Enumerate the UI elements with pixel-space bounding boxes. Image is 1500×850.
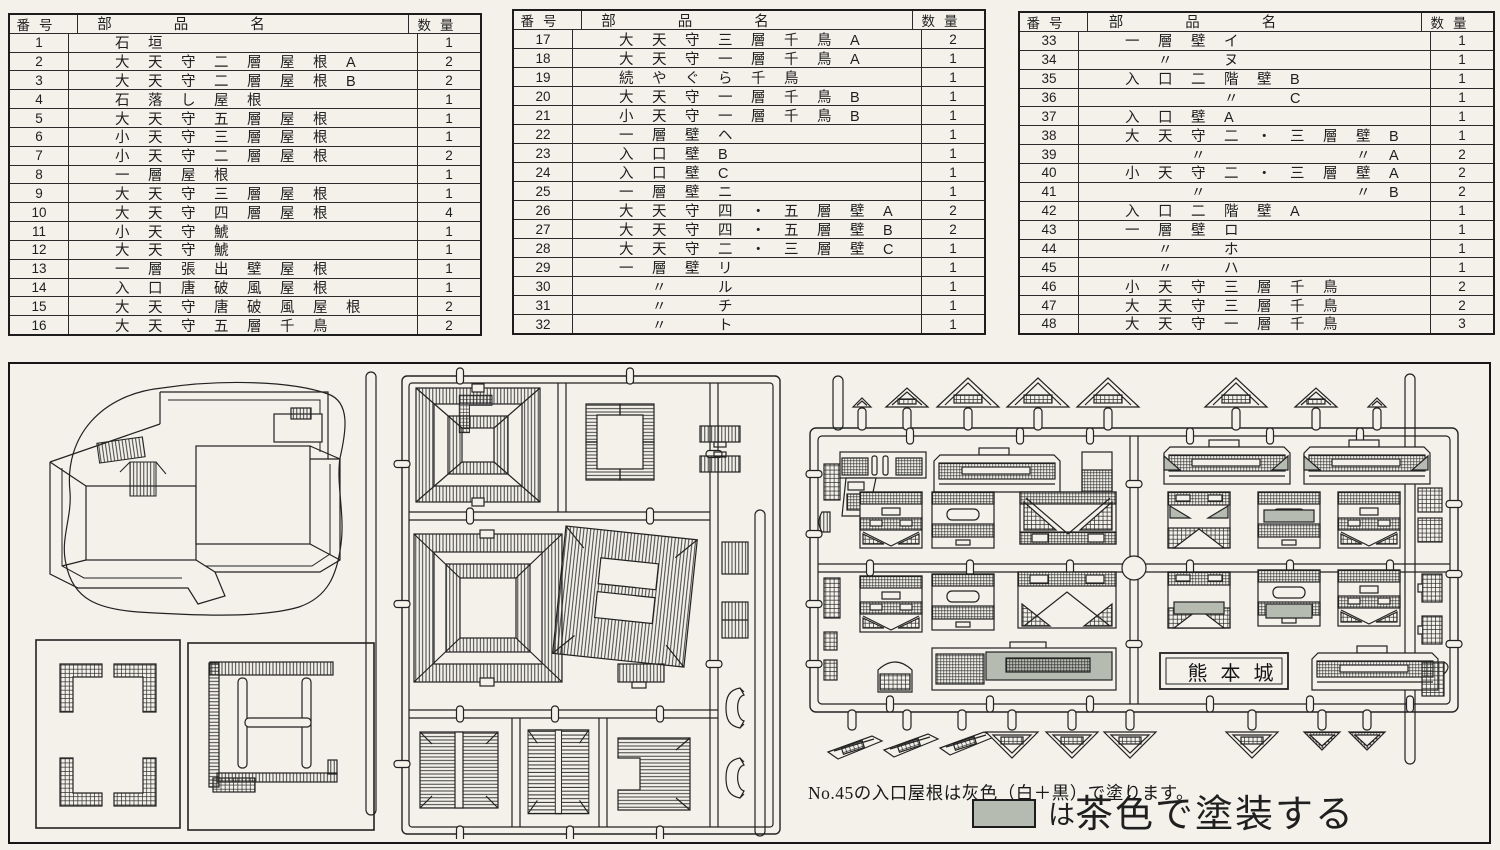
cell-name: 〃 ヌ — [1079, 51, 1430, 69]
table-row: 1石垣1 — [10, 33, 480, 52]
cell-no: 36 — [1020, 89, 1079, 107]
cell-no: 7 — [10, 147, 69, 165]
wall-sprue-runner — [806, 374, 1462, 764]
header-name: 部品名 — [78, 15, 408, 33]
cell-name: 〃 ホ — [1079, 240, 1430, 258]
cell-name: 一層壁イ — [1079, 32, 1430, 50]
cell-no: 23 — [514, 144, 573, 162]
table-row: 25一層壁ニ1 — [514, 181, 984, 200]
table-row: 23入口壁B1 — [514, 143, 984, 162]
cell-no: 34 — [1020, 51, 1079, 69]
cell-no: 32 — [514, 315, 573, 333]
cell-no: 5 — [10, 109, 69, 127]
cell-no: 47 — [1020, 296, 1079, 314]
wall-parts-top-right — [1164, 440, 1442, 548]
gable-wall-part — [932, 574, 994, 630]
cell-qty: 1 — [1430, 51, 1493, 69]
table-row: 13一層張出壁屋根1 — [10, 259, 480, 278]
cell-name: 大天守三層千鳥 — [1079, 296, 1430, 314]
table-row: 38大天守二・三層壁B1 — [1020, 125, 1493, 144]
table-row: 17大天守三層千鳥A2 — [514, 29, 984, 48]
table-row: 5大天守五層屋根1 — [10, 108, 480, 127]
cell-no: 37 — [1020, 107, 1079, 125]
brown-paint-swatch — [972, 799, 1036, 828]
cell-qty: 1 — [1430, 89, 1493, 107]
table-row: 3大天守二層屋根B2 — [10, 70, 480, 89]
clip-part — [1418, 574, 1442, 602]
long-roof-wall-part — [1304, 440, 1430, 484]
main-keep-compound-roof-part — [414, 526, 697, 688]
cell-name: 入口二階壁B — [1079, 70, 1430, 88]
wall-sprue-box — [188, 643, 374, 830]
cell-name: 小天守一層千鳥B — [573, 106, 921, 124]
cell-name: 小天守二・三層壁A — [1079, 164, 1430, 182]
cell-qty: 2 — [921, 220, 984, 238]
gable-wall-part — [1258, 570, 1320, 626]
cell-qty: 1 — [921, 296, 984, 314]
cell-no: 16 — [10, 316, 69, 334]
gable-wall-part — [1338, 492, 1400, 548]
cell-no: 1 — [10, 34, 69, 52]
cell-no: 41 — [1020, 183, 1079, 201]
table-row: 29一層壁リ1 — [514, 257, 984, 276]
cell-qty: 1 — [921, 239, 984, 257]
cell-qty: 2 — [1430, 164, 1493, 182]
cell-qty: 1 — [417, 128, 480, 146]
header-qty: 数量 — [1421, 13, 1493, 31]
cell-no: 8 — [10, 166, 69, 184]
header-qty: 数量 — [408, 15, 480, 33]
header-qty: 数量 — [912, 11, 984, 29]
cell-qty: 1 — [1430, 107, 1493, 125]
cell-qty: 1 — [921, 68, 984, 86]
cell-qty: 1 — [417, 109, 480, 127]
table-row: 42入口二階壁A1 — [1020, 201, 1493, 220]
cell-qty: 1 — [921, 277, 984, 295]
cell-name: 大天守三層千鳥A — [573, 30, 921, 48]
cell-qty: 1 — [921, 106, 984, 124]
cell-qty: 1 — [1430, 126, 1493, 144]
wide-gable-wall-part — [1018, 572, 1116, 628]
cell-no: 30 — [514, 277, 573, 295]
cell-qty: 2 — [417, 147, 480, 165]
table-row: 34 〃 ヌ1 — [1020, 50, 1493, 69]
table-row: 10大天守四層屋根4 — [10, 202, 480, 221]
cell-no: 22 — [514, 125, 573, 143]
cell-qty: 2 — [921, 201, 984, 219]
wide-gable-wall-part — [1020, 492, 1116, 544]
table-row: 11小天守鯱1 — [10, 221, 480, 240]
cell-qty: 1 — [921, 315, 984, 333]
small-ridge-parts — [700, 426, 740, 472]
cell-name: 〃 ト — [573, 315, 921, 333]
cell-no: 25 — [514, 182, 573, 200]
cell-no: 26 — [514, 201, 573, 219]
parts-table-1: 番号 部品名 数量 1石垣12大天守二層屋根A23大天守二層屋根B24石落し屋根… — [8, 13, 482, 336]
table-row: 12大天守鯱1 — [10, 240, 480, 259]
cell-no: 48 — [1020, 315, 1079, 333]
table-row: 14入口唐破風屋根1 — [10, 278, 480, 297]
cell-no: 42 — [1020, 202, 1079, 220]
header-no: 番号 — [10, 15, 78, 33]
table-row: 8一層屋根1 — [10, 165, 480, 184]
corner-wall-part — [60, 664, 102, 712]
cell-no: 19 — [514, 68, 573, 86]
legend-text: 茶色で塗装する — [1075, 796, 1355, 834]
gable-wall-part — [1168, 572, 1230, 628]
cell-name: 〃 C — [1079, 89, 1430, 107]
cell-name: 一層張出壁屋根 — [69, 260, 417, 278]
painted-long-roof-part — [932, 642, 1116, 690]
cell-name: 大天守一層千鳥 — [1079, 315, 1430, 333]
cell-qty: 4 — [417, 203, 480, 221]
cell-name: 大天守三層屋根 — [69, 184, 417, 202]
cell-qty: 2 — [417, 53, 480, 71]
header-no: 番号 — [514, 11, 582, 29]
cell-name: 石落し屋根 — [69, 90, 417, 108]
table-row: 40小天守二・三層壁A2 — [1020, 163, 1493, 182]
cell-no: 45 — [1020, 258, 1079, 276]
cell-qty: 1 — [417, 241, 480, 259]
table-row: 28大天守二・三層壁C1 — [514, 238, 984, 257]
cell-name: 大天守一層千鳥B — [573, 87, 921, 105]
cell-qty: 2 — [1430, 277, 1493, 295]
cell-qty: 1 — [1430, 221, 1493, 239]
wall-parts-top-left — [819, 448, 1116, 548]
cell-qty: 2 — [417, 316, 480, 334]
arch-wall-part — [878, 662, 912, 692]
cell-no: 9 — [10, 184, 69, 202]
cell-no: 29 — [514, 258, 573, 276]
cell-name: 一層壁ニ — [573, 182, 921, 200]
table-header: 番号 部品名 数量 — [514, 11, 984, 29]
cell-name: 小天守三層千鳥 — [1079, 277, 1430, 295]
cell-name: 大天守唐破風屋根 — [69, 297, 417, 315]
table-row: 6小天守三層屋根1 — [10, 127, 480, 146]
cell-name: 大天守二・三層壁C — [573, 239, 921, 257]
table-row: 4石落し屋根1 — [10, 89, 480, 108]
clip-part — [726, 688, 744, 728]
cell-qty: 2 — [1430, 145, 1493, 163]
cell-no: 44 — [1020, 240, 1079, 258]
cell-no: 6 — [10, 128, 69, 146]
table-row: 2大天守二層屋根A2 — [10, 52, 480, 71]
cell-qty: 1 — [1430, 258, 1493, 276]
cell-name: 続やぐら千鳥 — [573, 68, 921, 86]
small-side-parts — [722, 542, 748, 798]
cell-qty: 1 — [921, 125, 984, 143]
table-row: 9大天守三層屋根1 — [10, 183, 480, 202]
sprue-diagram — [10, 364, 1488, 839]
table-row: 22一層壁ヘ1 — [514, 124, 984, 143]
cell-no: 24 — [514, 163, 573, 181]
cell-name: 〃 ル — [573, 277, 921, 295]
instruction-sheet: 番号 部品名 数量 1石垣12大天守二層屋根A23大天守二層屋根B24石落し屋根… — [0, 0, 1500, 850]
cell-qty: 1 — [417, 222, 480, 240]
cell-no: 33 — [1020, 32, 1079, 50]
cell-no: 21 — [514, 106, 573, 124]
cell-no: 14 — [10, 279, 69, 297]
cell-qty: 1 — [921, 182, 984, 200]
long-wall-part — [1312, 646, 1438, 690]
cell-name: 一層壁ロ — [1079, 221, 1430, 239]
small-roof-parts — [420, 730, 690, 814]
cell-name: 石垣 — [69, 34, 417, 52]
cell-name: 〃 チ — [573, 296, 921, 314]
cell-name: 一層壁ヘ — [573, 125, 921, 143]
cell-qty: 1 — [921, 49, 984, 67]
cell-name: 小天守三層屋根 — [69, 128, 417, 146]
table-row: 36 〃 C1 — [1020, 88, 1493, 107]
cell-name: 大天守鯱 — [69, 241, 417, 259]
long-roof-wall-part — [1164, 440, 1290, 484]
table-row: 27大天守四・五層壁B2 — [514, 219, 984, 238]
gable-wall-part — [932, 492, 994, 548]
cell-name: 〃 〃A — [1079, 145, 1430, 163]
cell-no: 27 — [514, 220, 573, 238]
cell-name: 大天守一層千鳥A — [573, 49, 921, 67]
gable-wall-part — [860, 576, 922, 632]
cell-no: 38 — [1020, 126, 1079, 144]
table-row: 16大天守五層千鳥2 — [10, 315, 480, 334]
cell-qty: 1 — [417, 90, 480, 108]
cell-name: 大天守五層千鳥 — [69, 316, 417, 334]
cell-name: 大天守二層屋根B — [69, 71, 417, 89]
cell-no: 28 — [514, 239, 573, 257]
parts-table-2: 番号 部品名 数量 17大天守三層千鳥A218大天守一層千鳥A119続やぐら千鳥… — [512, 9, 986, 335]
cell-qty: 1 — [1430, 202, 1493, 220]
table-header: 番号 部品名 数量 — [1020, 13, 1493, 31]
cell-no: 40 — [1020, 164, 1079, 182]
gable-triangle-parts — [853, 378, 1386, 407]
down-gable-parts — [986, 732, 1385, 758]
cell-name: 入口壁C — [573, 163, 921, 181]
clip-part — [1418, 616, 1442, 644]
cell-name: 大天守四層屋根 — [69, 203, 417, 221]
cell-qty: 2 — [1430, 296, 1493, 314]
cell-no: 17 — [514, 30, 573, 48]
table-row: 7小天守二層屋根2 — [10, 146, 480, 165]
cell-qty: 1 — [921, 87, 984, 105]
cell-no: 4 — [10, 90, 69, 108]
cell-name: 入口唐破風屋根 — [69, 279, 417, 297]
cell-qty: 1 — [417, 166, 480, 184]
cell-name: 大天守四・五層壁A — [573, 201, 921, 219]
table-row: 21小天守一層千鳥B1 — [514, 105, 984, 124]
table-row: 24入口壁C1 — [514, 162, 984, 181]
legend-particle: は — [1048, 793, 1075, 832]
cell-qty: 1 — [1430, 70, 1493, 88]
header-name: 部品名 — [1088, 13, 1421, 31]
cell-name: 入口壁B — [573, 144, 921, 162]
header-name: 部品名 — [582, 11, 912, 29]
cell-name: 大天守二・三層壁B — [1079, 126, 1430, 144]
table-row: 30 〃 ル1 — [514, 276, 984, 295]
cell-name: 大天守五層屋根 — [69, 109, 417, 127]
table-row: 39 〃 〃A2 — [1020, 144, 1493, 163]
cell-qty: 2 — [921, 30, 984, 48]
table-row: 45 〃 ハ1 — [1020, 257, 1493, 276]
cell-no: 13 — [10, 260, 69, 278]
cell-qty: 1 — [921, 144, 984, 162]
cell-qty: 1 — [921, 258, 984, 276]
stone-base-drawing — [50, 382, 345, 615]
cell-no: 35 — [1020, 70, 1079, 88]
cell-name: 一層屋根 — [69, 166, 417, 184]
cell-qty: 2 — [417, 71, 480, 89]
cell-name: 一層壁リ — [573, 258, 921, 276]
cell-no: 43 — [1020, 221, 1079, 239]
table-row: 35入口二階壁B1 — [1020, 69, 1493, 88]
cell-no: 18 — [514, 49, 573, 67]
cell-no: 10 — [10, 203, 69, 221]
cell-name: 小天守二層屋根 — [69, 147, 417, 165]
cell-name: 〃 〃B — [1079, 183, 1430, 201]
paint-legend: は 茶色で塗装する — [972, 793, 1355, 834]
cell-no: 2 — [10, 53, 69, 71]
table-row: 18大天守一層千鳥A1 — [514, 48, 984, 67]
corner-wall-parts-box — [36, 640, 180, 828]
wall-parts-bottom-left — [824, 572, 1116, 692]
gable-wall-part — [1168, 492, 1230, 548]
cell-qty: 1 — [1430, 240, 1493, 258]
cell-qty: 1 — [417, 184, 480, 202]
table-row: 43一層壁ロ1 — [1020, 220, 1493, 239]
long-wall-part — [934, 448, 1060, 492]
table-row: 19続やぐら千鳥1 — [514, 67, 984, 86]
cell-qty: 1 — [417, 260, 480, 278]
cell-no: 46 — [1020, 277, 1079, 295]
gable-wall-part — [860, 492, 922, 548]
table-row: 41 〃 〃B2 — [1020, 182, 1493, 201]
cell-no: 31 — [514, 296, 573, 314]
gable-wall-part — [1258, 492, 1320, 548]
table-row: 26大天守四・五層壁A2 — [514, 200, 984, 219]
table-header: 番号 部品名 数量 — [10, 15, 480, 33]
cell-name: 入口二階壁A — [1079, 202, 1430, 220]
cell-qty: 3 — [1430, 315, 1493, 333]
table-row: 46小天守三層千鳥2 — [1020, 276, 1493, 295]
table-row: 33一層壁イ1 — [1020, 31, 1493, 50]
table-row: 37入口壁A1 — [1020, 106, 1493, 125]
clip-part — [726, 758, 744, 798]
cell-no: 11 — [10, 222, 69, 240]
table-row: 48大天守一層千鳥3 — [1020, 314, 1493, 333]
cell-name: 入口壁A — [1079, 107, 1430, 125]
table-row: 47大天守三層千鳥2 — [1020, 295, 1493, 314]
curved-gable-parts — [828, 732, 994, 759]
table-row: 32 〃 ト1 — [514, 314, 984, 333]
cell-qty: 1 — [417, 34, 480, 52]
cell-no: 12 — [10, 241, 69, 259]
castle-nameplate: 熊本城 — [1160, 653, 1301, 689]
cell-no: 15 — [10, 297, 69, 315]
cell-name: 〃 ハ — [1079, 258, 1430, 276]
table-row: 44 〃 ホ1 — [1020, 239, 1493, 258]
parts-table-3: 番号 部品名 数量 33一層壁イ134 〃 ヌ135入口二階壁B136 〃 C1… — [1018, 11, 1495, 335]
cell-name: 小天守鯱 — [69, 222, 417, 240]
cell-no: 20 — [514, 87, 573, 105]
header-no: 番号 — [1020, 13, 1088, 31]
cell-qty: 1 — [1430, 32, 1493, 50]
cell-name: 大天守四・五層壁B — [573, 220, 921, 238]
table-row: 20大天守一層千鳥B1 — [514, 86, 984, 105]
small-wall-part — [1418, 488, 1442, 512]
gable-wall-part — [1338, 570, 1400, 626]
cell-qty: 1 — [921, 163, 984, 181]
cell-qty: 2 — [1430, 183, 1493, 201]
clip-part — [1422, 662, 1448, 696]
cell-qty: 1 — [417, 279, 480, 297]
cell-no: 3 — [10, 71, 69, 89]
cell-name: 大天守二層屋根A — [69, 53, 417, 71]
table-row: 31 〃 チ1 — [514, 295, 984, 314]
cell-no: 39 — [1020, 145, 1079, 163]
cell-qty: 2 — [417, 297, 480, 315]
table-row: 15大天守唐破風屋根2 — [10, 296, 480, 315]
